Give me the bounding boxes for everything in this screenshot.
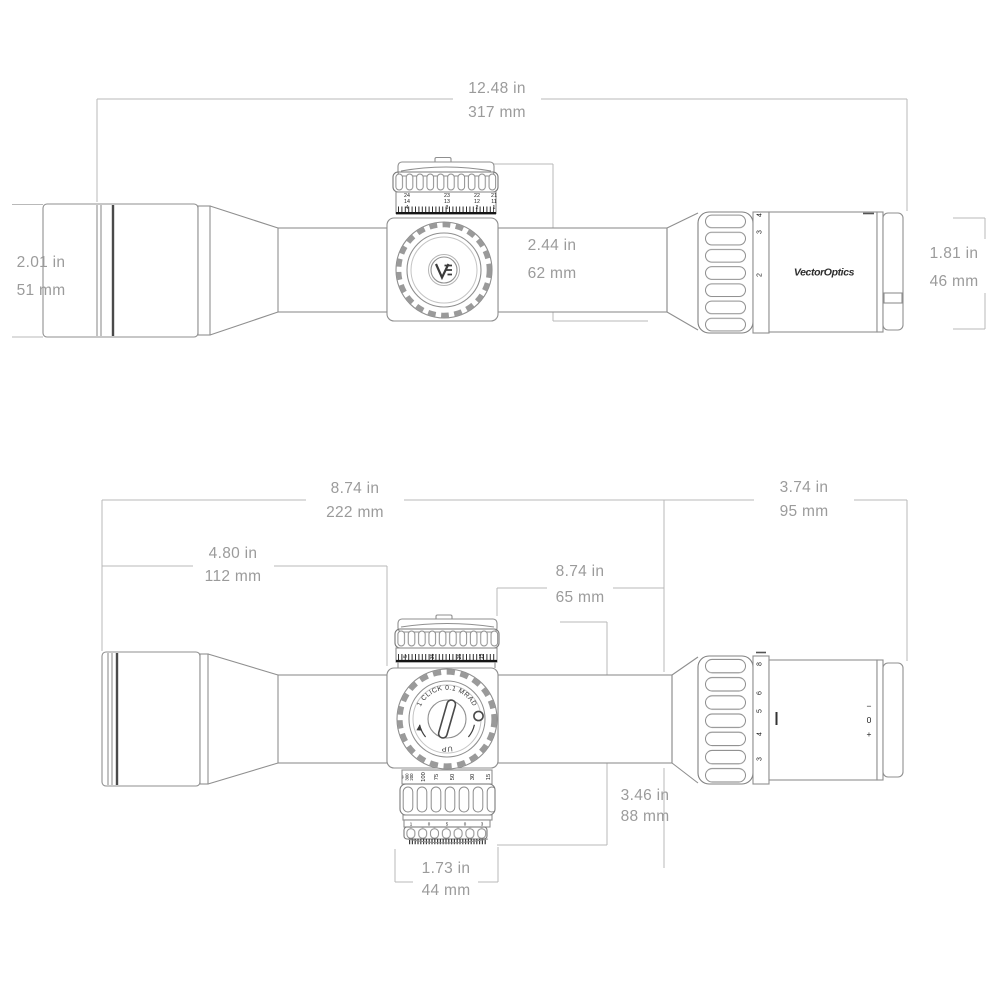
diagram-svg: 12.48 in 317 mm 2.01 in 51 mm 2.44 in 62… [0, 0, 1000, 1000]
dim-saddle-length-mm: 65 mm [556, 589, 605, 606]
diopter-scale: − 0 + [867, 701, 872, 739]
parallax-number: 30 [470, 774, 476, 780]
parallax-number: 200 [409, 773, 414, 781]
dim-objective-to-turret-mm: 112 mm [205, 568, 262, 585]
diopter-mark: + [867, 729, 872, 739]
dim-turret-height-mm: 62 mm [528, 265, 577, 282]
dim-eyepiece-mm: 46 mm [930, 273, 979, 290]
dimension-diagram: 12.48 in 317 mm 2.01 in 51 mm 2.44 in 62… [0, 0, 1000, 1000]
zoom-number: 8 [757, 662, 764, 666]
zoom-number: 5 [757, 709, 764, 713]
zoom-number: 4 [757, 732, 764, 736]
dim-turret-height-in: 2.44 in [528, 237, 577, 254]
turret-number: 4 [406, 205, 409, 211]
dim-turret-width-in: 1.73 in [422, 860, 471, 877]
turret-number: 1 [493, 205, 496, 211]
zoom-number: 3 [757, 230, 764, 234]
turret-number: 5 [403, 655, 409, 658]
zoom-number: 2 [757, 273, 764, 277]
dim-overall-length-mm: 317 mm [468, 104, 526, 121]
dim-turret-height2-mm: 88 mm [621, 808, 670, 825]
parallax-number: 15 [486, 774, 492, 780]
dim-turret-height2-in: 3.46 in [621, 787, 670, 804]
dim-front-length-in: 8.74 in [331, 480, 380, 497]
brand-logo-text: VectorOptics [794, 267, 855, 279]
dim-saddle-length-in: 8.74 in [556, 563, 605, 580]
zoom-number: 4 [757, 213, 764, 217]
diopter-mark: − [867, 701, 872, 711]
dim-objective-in: 2.01 in [17, 254, 66, 271]
parallax-wheel [400, 770, 495, 843]
zoom-number: 6 [757, 691, 764, 695]
objective-bell-bottom [102, 652, 278, 786]
turret-number: 2 [476, 205, 479, 211]
windage-knob-face [397, 669, 497, 769]
dim-turret-width-mm: 44 mm [422, 882, 471, 899]
bottom-view-scope [102, 615, 903, 843]
indicator-dot [474, 711, 483, 720]
turret-number: 15 [479, 654, 485, 660]
dim-front-length-mm: 222 mm [326, 504, 384, 521]
objective-bell [43, 204, 278, 337]
dim-overall-length-in: 12.48 in [468, 80, 526, 97]
dim-objective-mm: 51 mm [17, 282, 66, 299]
top-view-scope [43, 158, 903, 338]
diopter-mark: 0 [867, 715, 872, 725]
dim-eyepiece-length-mm: 95 mm [780, 503, 829, 520]
zoom-number: 3 [757, 757, 764, 761]
turret-number: 35 [430, 654, 436, 660]
dim-eyepiece-in: 1.81 in [930, 245, 979, 262]
windage-knob [396, 222, 492, 318]
eyepiece [667, 212, 903, 333]
dim-objective-to-turret-in: 4.80 in [209, 545, 258, 562]
parallax-number: 100 [421, 772, 427, 782]
parallax-number: 75 [434, 774, 440, 780]
parallax-number: 50 [450, 774, 456, 780]
turret-number: 3 [446, 205, 449, 211]
turret-number: 25 [457, 654, 463, 660]
dim-eyepiece-length-in: 3.74 in [780, 479, 829, 496]
